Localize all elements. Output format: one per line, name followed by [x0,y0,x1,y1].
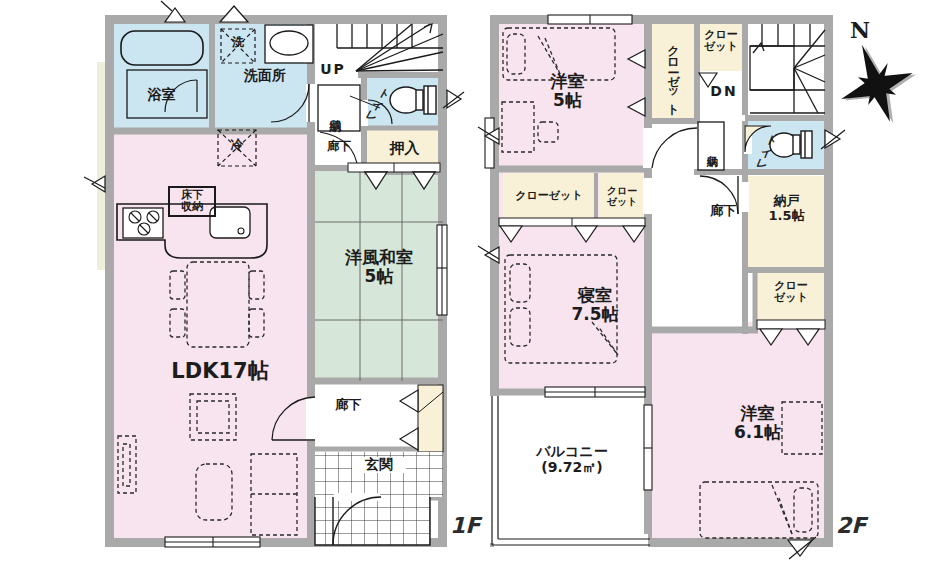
washing-machine-label: 洗 [221,36,255,49]
bedroom5-label: 洋室 5帖 [505,72,630,110]
entrance-label: 玄関 [352,457,406,473]
floorplan-canvas: 浴室 洗 洗面所 UP 収納 トイレ 廊下 押入 冷 床下 収納 洋風和室 5帖… [0,0,950,570]
stairs-down-label: DN [704,84,744,100]
bathroom-label: 浴室 [114,87,209,103]
washroom-label: 洗面所 [215,68,315,84]
stairs-up-label: UP [314,62,352,78]
floor2-label: 2F [836,514,866,539]
storeroom-label: 納戸 1.5帖 [748,194,825,223]
balcony-label: バルコニー (9.72㎡) [499,444,645,475]
toilet-icon-1f [390,86,436,114]
closet-a-label: クローゼット [503,190,595,202]
bedroom61-label: 洋室 6.1帖 [700,404,815,442]
vanity-sink-icon [265,25,313,63]
underfloor-storage-label: 床下 収納 [168,186,216,217]
hall-storage-label: 収納 [705,126,717,168]
oshiire-label: 押入 [366,140,443,157]
compass-north-label: N [848,18,872,43]
closet-right-label: クロー ゼット [757,280,825,305]
hall-label-2f: 廊下 [700,204,746,219]
floor1-label: 1F [450,514,480,539]
master-bedroom-label: 寝室 7.5帖 [540,286,650,324]
ldk-label: LDK17帖 [145,360,295,384]
closet-b-label: クロー ゼット [599,185,645,207]
fridge-label: 冷 [218,138,256,153]
stair-closet-label: 収納 [328,88,341,132]
closet-top-label: クロー ゼット [698,29,744,54]
kitchen-sink [210,207,250,238]
hall-upper-label-1f: 廊下 [315,140,363,153]
closet-tall-label: クローゼット [666,28,679,118]
compass-icon [826,31,929,137]
tatami-room-label: 洋風和室 5帖 [315,248,443,286]
hall-lower-label-1f: 廊下 [320,398,376,413]
